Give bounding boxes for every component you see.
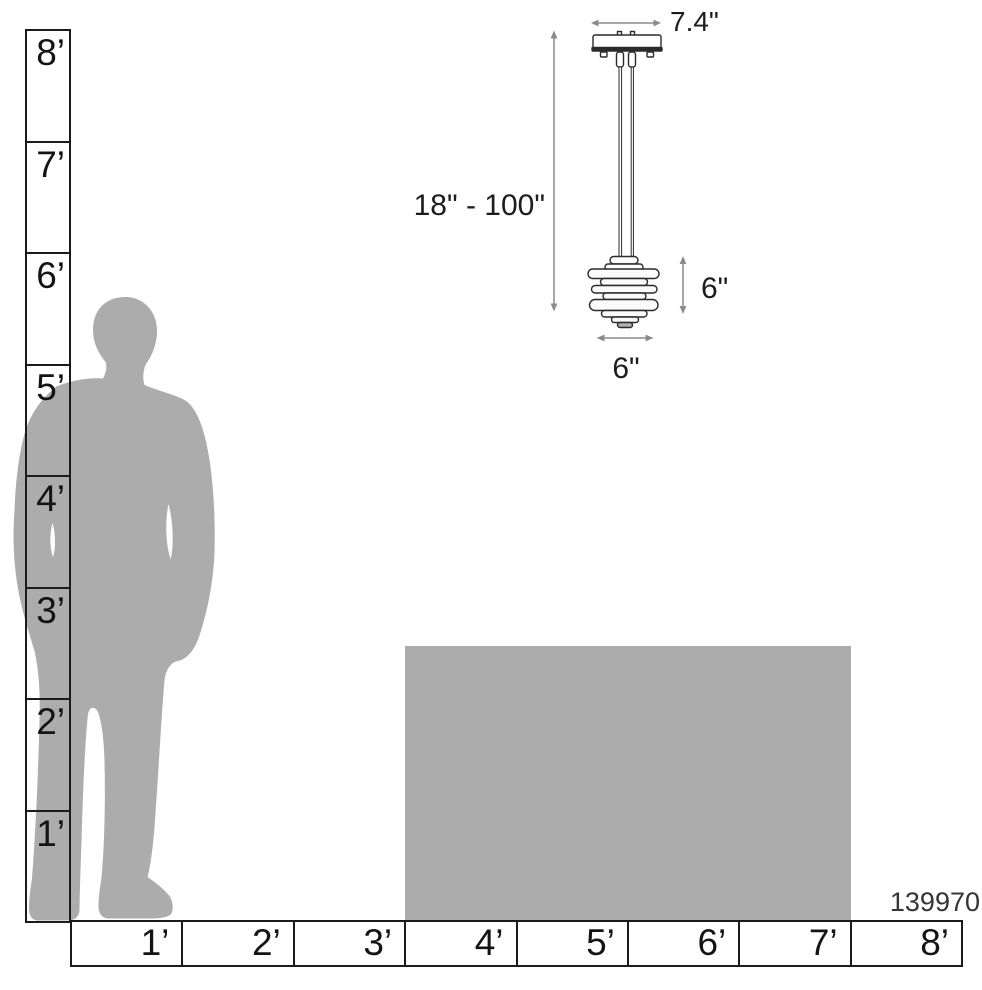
vertical-ruler-segment: 8’ <box>27 31 69 143</box>
vertical-ruler-segment: 1’ <box>27 812 69 922</box>
hanging-rods <box>617 52 636 257</box>
ruler-label: 6’ <box>697 924 726 961</box>
ruler-label: 8’ <box>36 34 65 71</box>
vertical-ruler-segment: 4’ <box>27 477 69 589</box>
horizontal-ruler-segment: 4’ <box>406 922 517 965</box>
vertical-ruler: 8’ 7’ 6’ 5’ 4’ 3’ 2’ 1’ <box>25 29 71 923</box>
ruler-label: 6’ <box>36 257 65 294</box>
pendant-light-drawing <box>588 32 662 328</box>
ruler-label: 5’ <box>586 924 615 961</box>
horizontal-ruler-segment: 8’ <box>852 922 961 965</box>
horizontal-ruler-segment: 7’ <box>740 922 851 965</box>
horizontal-ruler-segment: 3’ <box>295 922 406 965</box>
vertical-ruler-segment: 3’ <box>27 589 69 701</box>
fixture-height-label: 6" <box>701 272 728 305</box>
ruler-label: 4’ <box>36 480 65 517</box>
suspension-height-label: 18" - 100" <box>385 189 545 222</box>
canopy <box>592 32 662 58</box>
size-comparison-diagram: 8’ 7’ 6’ 5’ 4’ 3’ 2’ 1’ 1’ 2’ 3’ 4’ 5’ 6… <box>0 0 982 990</box>
vertical-ruler-segment: 2’ <box>27 700 69 812</box>
horizontal-ruler-segment: 2’ <box>183 922 294 965</box>
horizontal-ruler-segment: 6’ <box>629 922 740 965</box>
horizontal-ruler: 1’ 2’ 3’ 4’ 5’ 6’ 7’ 8’ <box>70 920 963 967</box>
ruler-label: 3’ <box>363 924 392 961</box>
ruler-label: 2’ <box>252 924 281 961</box>
horizontal-ruler-segment: 5’ <box>518 922 629 965</box>
ruler-label: 3’ <box>36 592 65 629</box>
fixture-height-arrow <box>680 256 687 314</box>
fixture-width-arrow <box>597 335 654 342</box>
shade-discs <box>588 257 659 328</box>
fixture-width-label: 6" <box>595 352 657 385</box>
ruler-label: 1’ <box>36 815 65 852</box>
ruler-label: 7’ <box>809 924 838 961</box>
suspension-height-arrow <box>551 31 558 312</box>
ruler-label: 8’ <box>920 924 949 961</box>
ruler-label: 5’ <box>36 369 65 406</box>
canopy-width-label: 7.4" <box>670 7 719 38</box>
vertical-ruler-segment: 7’ <box>27 143 69 255</box>
canopy-width-arrow <box>591 20 661 27</box>
ruler-label: 2’ <box>36 703 65 740</box>
vertical-ruler-segment: 6’ <box>27 254 69 366</box>
table-silhouette <box>405 646 851 922</box>
vertical-ruler-segment: 5’ <box>27 366 69 478</box>
diagram-artwork <box>0 0 982 990</box>
ruler-label: 1’ <box>141 924 170 961</box>
product-number: 139970 <box>780 888 980 918</box>
ruler-label: 4’ <box>475 924 504 961</box>
horizontal-ruler-segment: 1’ <box>72 922 183 965</box>
ruler-label: 7’ <box>36 146 65 183</box>
